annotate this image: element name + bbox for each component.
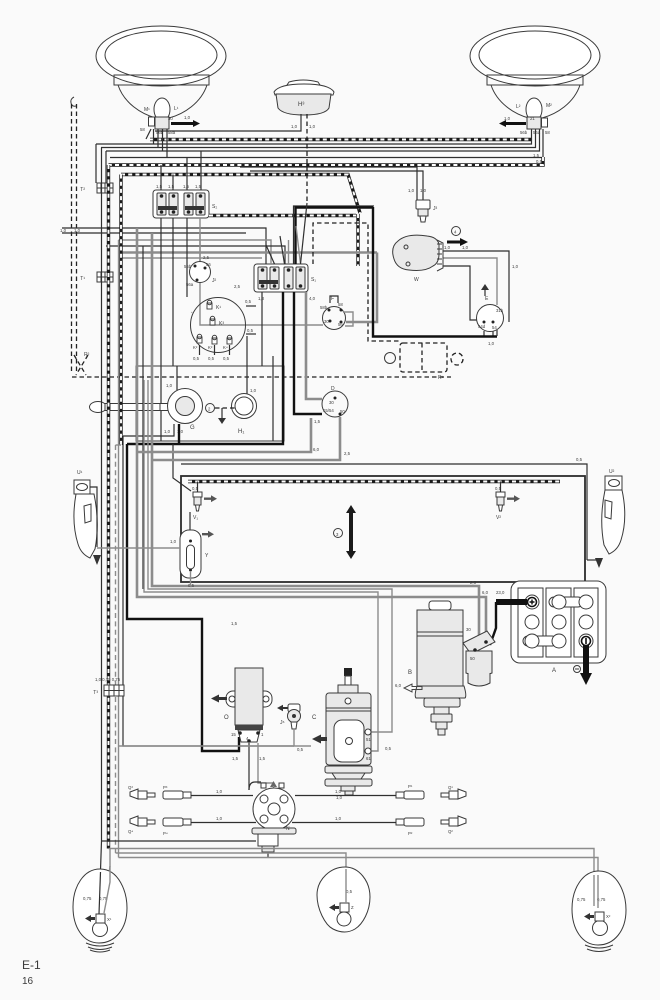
svg-text:T³: T³ [93,690,98,696]
svg-text:K³: K³ [219,321,224,327]
svg-text:G: G [190,425,195,431]
svg-text:P²: P² [408,831,413,836]
svg-text:54d: 54d [478,324,486,329]
svg-text:1,0: 1,0 [335,816,342,821]
svg-text:1,0: 1,0 [335,789,342,794]
svg-text:S₁: S₁ [311,277,316,283]
svg-text:0,5: 0,5 [385,746,392,751]
svg-text:58: 58 [140,127,145,132]
svg-text:6,0: 6,0 [313,447,320,452]
svg-text:Q¹: Q¹ [448,785,453,790]
svg-text:0,5: 0,5 [536,159,543,164]
svg-text:1,0: 1,0 [170,539,177,544]
svg-text:1,0: 1,0 [309,124,316,129]
svg-text:51: 51 [366,737,371,742]
svg-text:0,75: 0,75 [83,896,92,901]
svg-text:T¹: T¹ [80,276,85,282]
svg-text:58b: 58b [320,305,328,310]
svg-text:O: O [224,715,229,721]
svg-text:56a: 56a [533,130,541,135]
svg-text:0,5: 0,5 [297,747,304,752]
svg-text:4,0: 4,0 [309,296,316,301]
svg-text:0,5: 0,5 [245,299,252,304]
svg-text:31b: 31b [496,308,504,313]
svg-text:Q²: Q² [448,829,453,834]
svg-text:Q⁴: Q⁴ [128,829,133,834]
svg-text:15: 15 [231,732,236,737]
svg-text:2,5: 2,5 [344,451,351,456]
svg-text:30: 30 [324,319,329,324]
svg-text:1,0: 1,0 [216,816,223,821]
svg-text:56: 56 [338,322,343,327]
svg-text:C: C [312,715,317,721]
svg-text:X¹: X¹ [107,917,112,922]
svg-text:1,0 0,75 0,75: 1,0 0,75 0,75 [95,677,121,682]
svg-text:58: 58 [545,130,550,135]
svg-text:23,0: 23,0 [496,590,505,595]
svg-text:B: B [408,670,412,676]
svg-text:L¹: L¹ [174,106,179,112]
svg-text:1,0: 1,0 [512,264,519,269]
svg-text:1,0: 1,0 [166,383,173,388]
svg-text:K²: K² [208,345,213,350]
svg-text:T²: T² [80,187,85,193]
svg-text:0,5: 0,5 [346,889,353,894]
svg-text:16: 16 [22,976,34,987]
svg-text:0,5: 0,5 [193,356,200,361]
svg-text:0,5: 0,5 [247,328,254,333]
svg-text:A: A [552,668,556,674]
svg-text:1,0: 1,0 [291,124,298,129]
svg-text:56a: 56a [186,282,194,287]
svg-text:Z: Z [351,905,354,910]
svg-text:F: F [331,296,334,302]
svg-text:1,0: 1,0 [216,789,223,794]
svg-text:54: 54 [492,325,497,330]
svg-text:30: 30 [329,400,334,405]
svg-text:M¹: M¹ [144,107,150,113]
svg-text:K⁴: K⁴ [223,345,228,350]
svg-text:V²: V² [496,515,501,521]
svg-text:21: 21 [530,116,535,121]
svg-text:1,0: 1,0 [74,228,81,233]
svg-text:H³: H³ [298,102,304,108]
svg-text:2,5: 2,5 [470,580,477,585]
svg-text:P⁴: P⁴ [163,831,168,836]
svg-text:K¹: K¹ [216,305,221,311]
svg-text:1,5: 1,5 [231,621,238,626]
svg-text:V₁: V₁ [193,515,198,521]
svg-text:56: 56 [206,262,211,267]
svg-text:1,0: 1,0 [164,429,171,434]
svg-text:U²: U² [609,469,615,475]
svg-text:1,3: 1,3 [258,296,265,301]
svg-text:1,0: 1,0 [444,245,451,250]
svg-text:30: 30 [466,627,471,632]
svg-text:2,5: 2,5 [203,255,210,260]
svg-text:56b: 56b [184,264,192,269]
svg-text:1,0: 1,0 [60,228,67,233]
svg-text:1,0: 1,0 [504,116,511,121]
svg-text:6,0: 6,0 [395,683,402,688]
svg-text:M²: M² [546,103,552,109]
svg-text:50: 50 [470,656,475,661]
svg-text:61: 61 [366,756,371,761]
svg-text:←: ← [190,309,194,314]
svg-text:1,0: 1,0 [420,188,427,193]
svg-text:D: D [331,386,335,392]
svg-text:58: 58 [338,302,343,307]
svg-text:1,0: 1,0 [184,115,191,120]
svg-text:0,5: 0,5 [223,356,230,361]
svg-text:1,0: 1,0 [488,341,495,346]
svg-text:0,5: 0,5 [208,356,215,361]
svg-text:6,0: 6,0 [482,590,489,595]
svg-text:0,5: 0,5 [576,457,583,462]
svg-text:N: N [286,826,290,832]
svg-text:J³: J³ [433,206,438,212]
svg-text:1,0: 1,0 [408,188,415,193]
svg-text:2,5: 2,5 [234,284,241,289]
svg-text:1,5: 1,5 [314,419,321,424]
svg-text:1,0: 1,0 [250,388,257,393]
svg-text:R²: R² [84,352,90,358]
svg-text:0,5: 0,5 [188,583,195,588]
svg-text:H₁: H₁ [238,429,244,435]
svg-text:P¹: P¹ [408,784,413,789]
svg-text:S₂: S₂ [212,204,217,210]
svg-text:W: W [414,277,419,283]
svg-text:Q³: Q³ [128,785,133,790]
svg-text:X²: X² [606,914,611,919]
svg-text:1,0: 1,0 [462,245,469,250]
svg-text:1,5: 1,5 [232,756,239,761]
svg-text:P³: P³ [163,785,168,790]
svg-text:R¹: R¹ [438,375,444,381]
svg-text:1,5: 1,5 [183,184,190,189]
svg-text:E-1: E-1 [22,958,41,972]
svg-text:0,75: 0,75 [577,897,586,902]
svg-text:J⁶: J⁶ [280,720,285,726]
svg-text:J²: J² [212,278,217,284]
svg-text:K²: K² [193,345,198,350]
svg-text:15/54: 15/54 [323,408,334,413]
svg-text:1,5: 1,5 [259,756,266,761]
svg-text:30: 30 [168,116,173,121]
svg-text:L²: L² [516,104,521,110]
svg-text:1,5: 1,5 [533,153,540,158]
svg-text:56b: 56b [520,130,528,135]
svg-text:U¹: U¹ [77,470,83,476]
